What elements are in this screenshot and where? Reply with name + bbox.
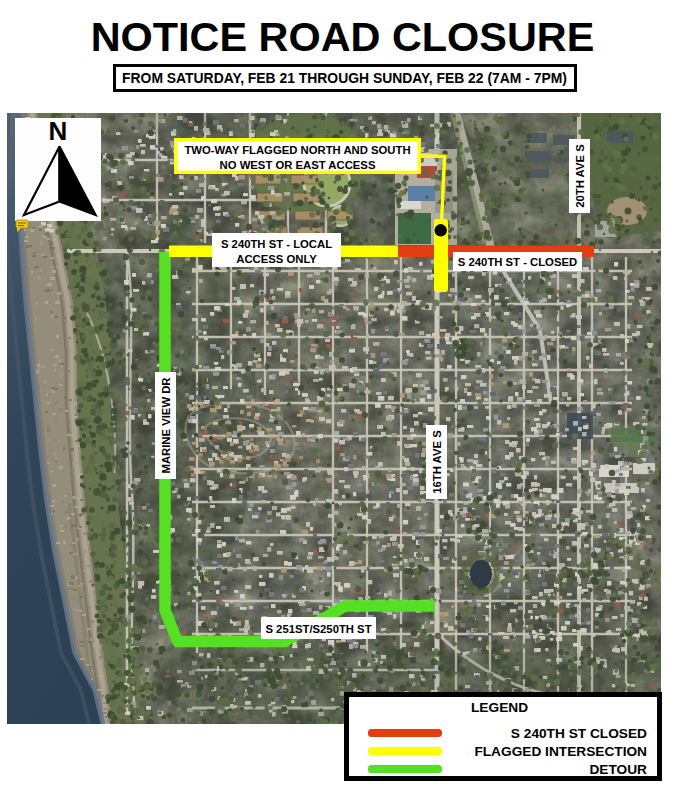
svg-text:N: N	[49, 116, 68, 146]
svg-text:TWO-WAY FLAGGED NORTH AND SOUT: TWO-WAY FLAGGED NORTH AND SOUTH	[184, 144, 410, 156]
svg-text:16TH AVE S: 16TH AVE S	[431, 430, 443, 494]
svg-text:S 240TH ST - CLOSED: S 240TH ST - CLOSED	[458, 256, 577, 268]
svg-text:S 240TH ST - LOCAL: S 240TH ST - LOCAL	[221, 238, 332, 250]
svg-text:S 251ST/S250TH ST: S 251ST/S250TH ST	[265, 623, 371, 635]
svg-text:ACCESS ONLY: ACCESS ONLY	[236, 253, 317, 265]
svg-text:20TH AVE S: 20TH AVE S	[574, 144, 586, 208]
svg-text:NO WEST OR EAST ACCESS: NO WEST OR EAST ACCESS	[220, 159, 376, 171]
svg-text:MARINE VIEW DR: MARINE VIEW DR	[160, 377, 172, 473]
